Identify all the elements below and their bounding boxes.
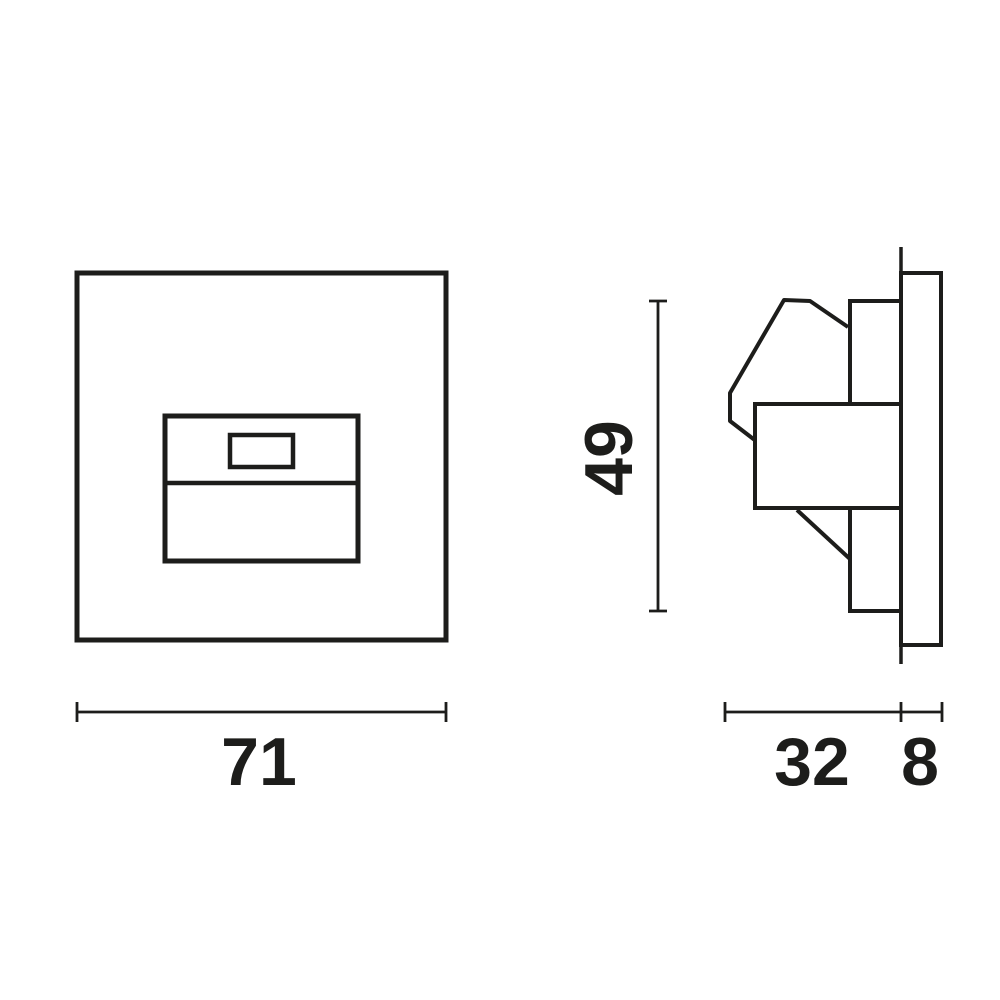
technical-drawing: 49 71 32 8	[0, 0, 1000, 1000]
lower-bevel-edge	[797, 510, 850, 559]
dimension-drawing-canvas: 49 71 32 8	[0, 0, 1000, 1000]
dim-line-height	[649, 301, 667, 611]
dim-line-depth	[725, 702, 942, 722]
side-view	[730, 247, 941, 664]
module-outline	[165, 416, 358, 561]
dim-line-width	[77, 702, 446, 722]
module-window-cutout	[230, 435, 293, 467]
dim-label-plate-depth: 8	[901, 724, 939, 800]
dim-label-recess-depth: 32	[774, 724, 850, 800]
connector-body-profile	[755, 404, 901, 508]
faceplate-profile	[901, 273, 941, 645]
dim-label-width: 71	[221, 724, 297, 800]
dim-label-height: 49	[571, 420, 647, 496]
front-view	[77, 273, 446, 640]
faceplate-outer-square	[77, 273, 446, 640]
dimension-annotations: 49 71 32 8	[77, 301, 942, 800]
